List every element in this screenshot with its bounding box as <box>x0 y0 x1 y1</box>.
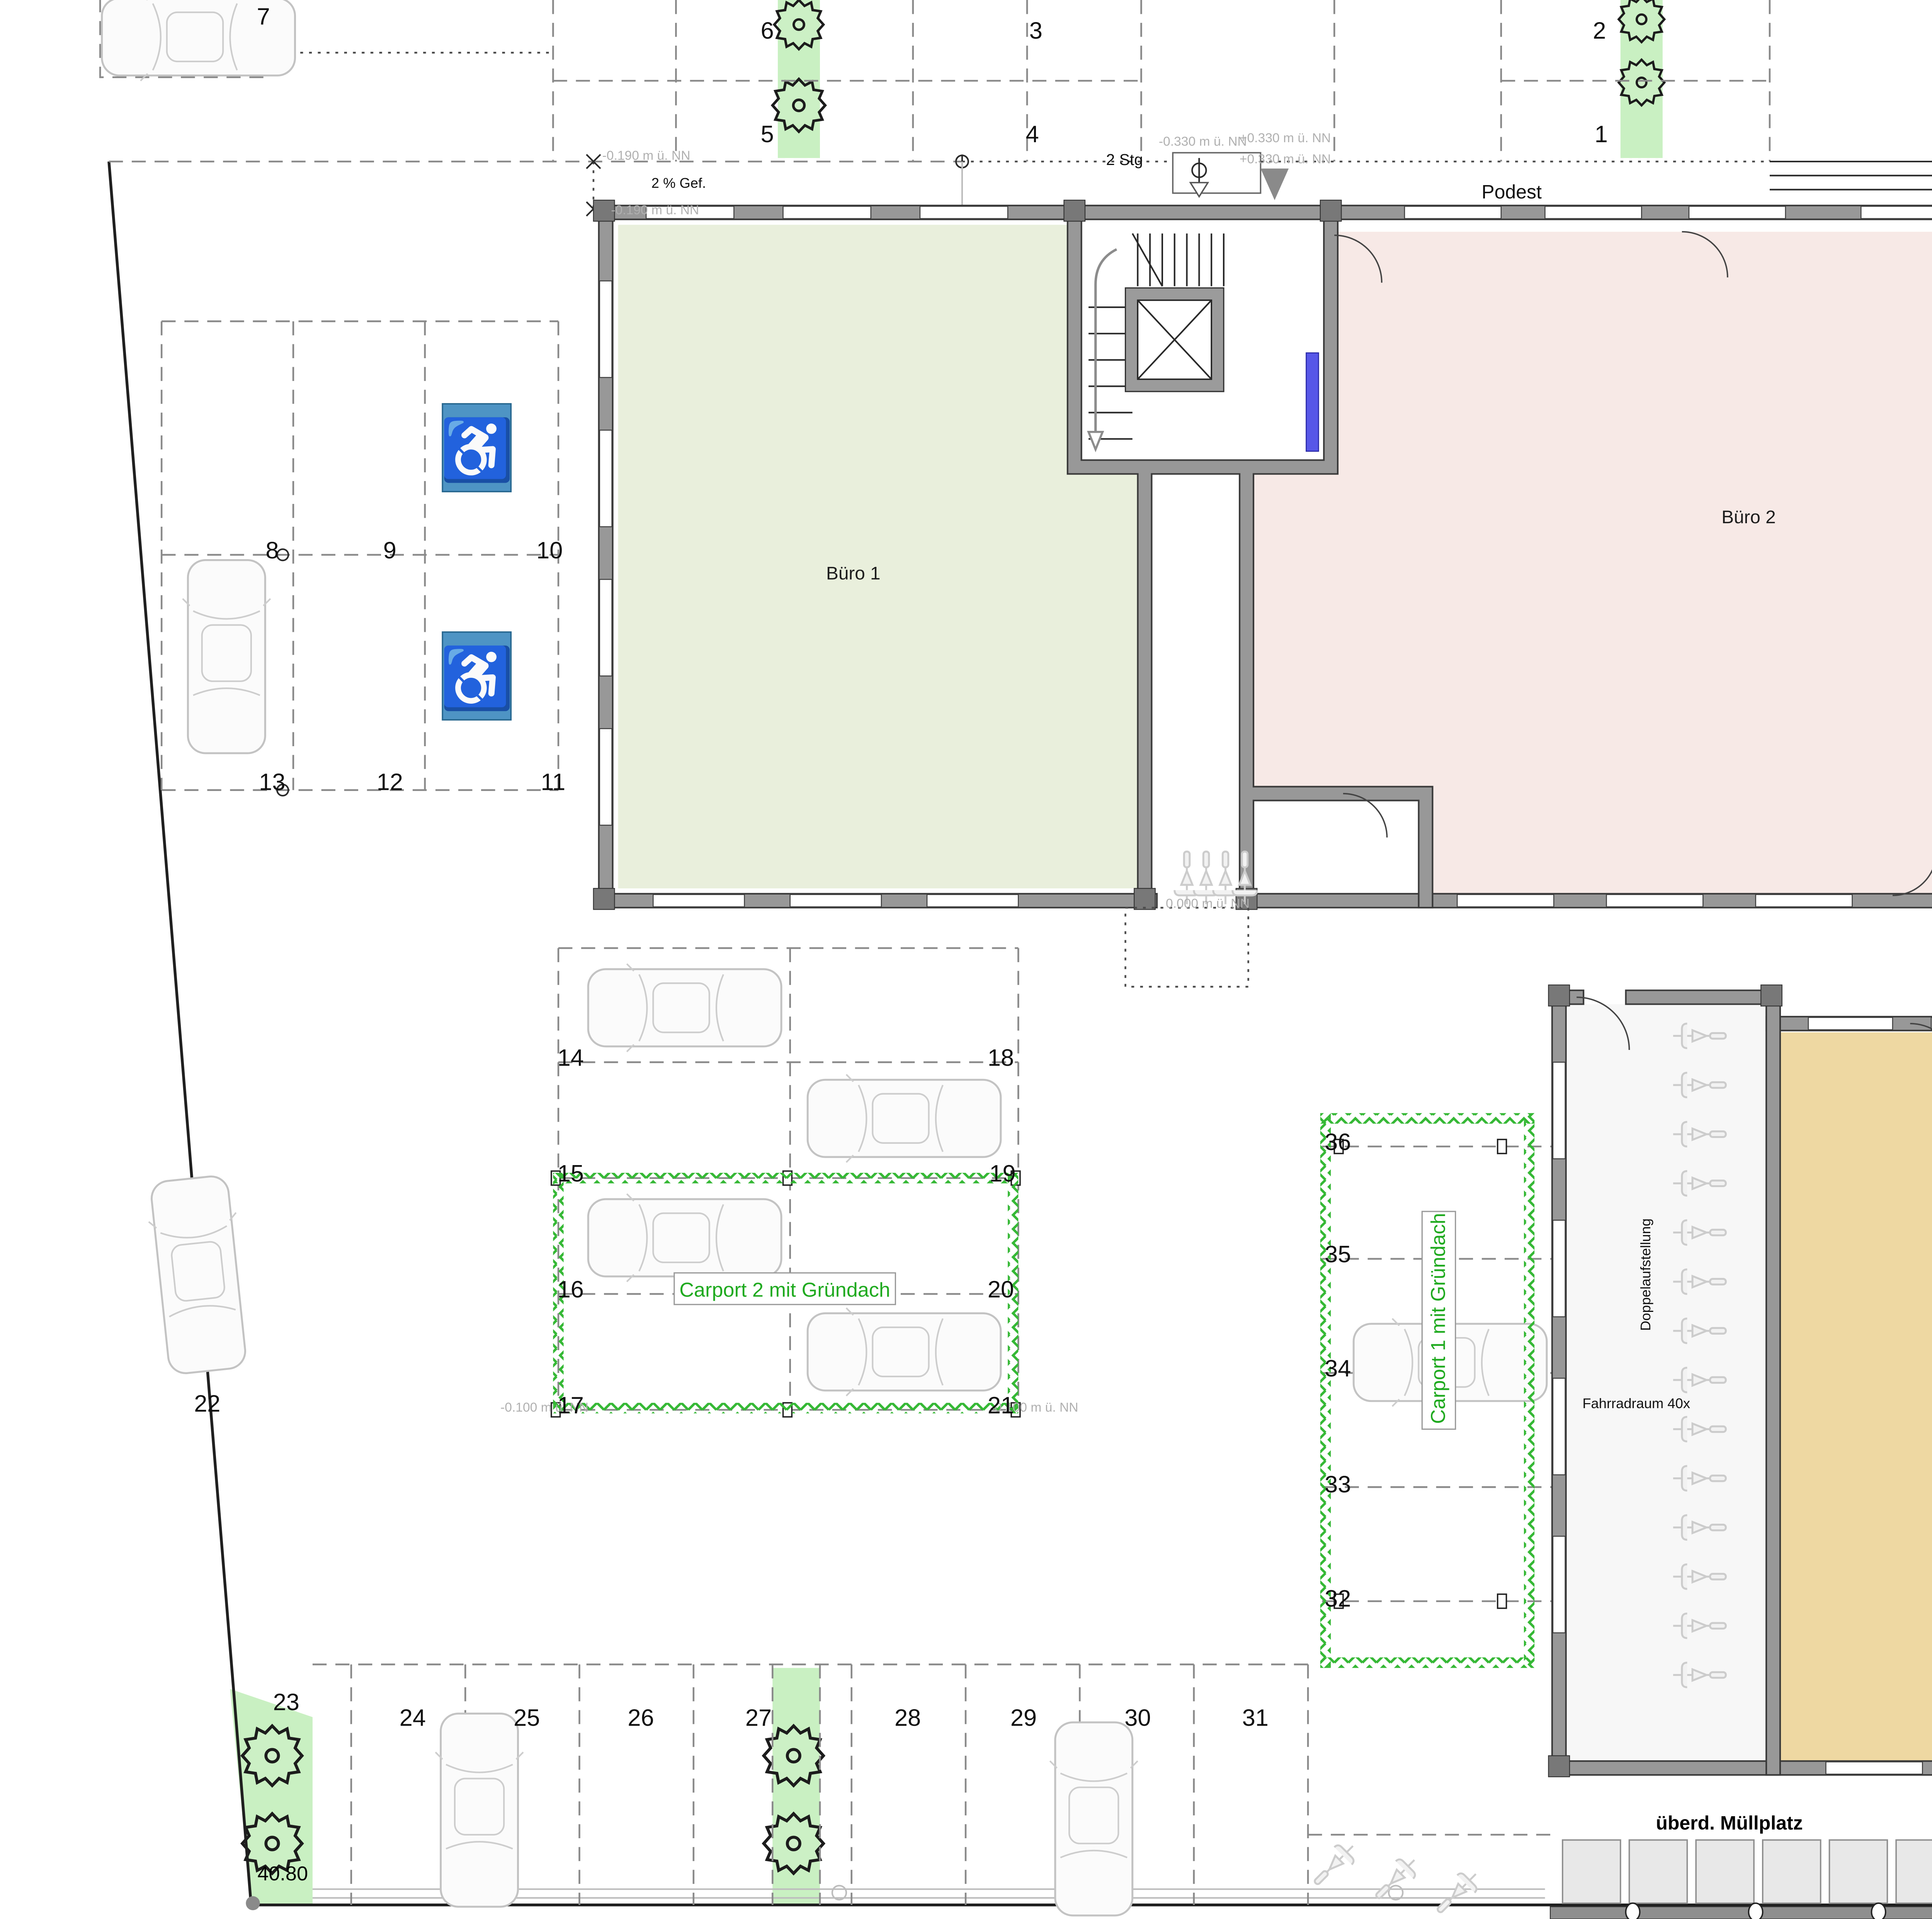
spot-30: 30 <box>1124 1704 1151 1731</box>
spot-25: 25 <box>514 1704 540 1731</box>
svg-text:+0.330 m ü. NN: +0.330 m ü. NN <box>1240 131 1331 145</box>
car-icon <box>1050 1722 1138 1916</box>
wheelchair-icon: ♿ <box>440 417 514 484</box>
svg-text:Carport 1 mit Gründach: Carport 1 mit Gründach <box>1427 1213 1449 1424</box>
spot-32: 32 <box>1325 1585 1351 1611</box>
spot-17: 17 <box>558 1392 584 1418</box>
spot-34: 34 <box>1325 1355 1351 1381</box>
spot-26: 26 <box>628 1704 654 1731</box>
fahrradraum-fill <box>1568 1004 1769 1764</box>
spot-24: 24 <box>400 1704 426 1731</box>
boundary-point <box>246 1896 260 1910</box>
room-buero3-fill <box>1780 1033 1932 1761</box>
spot-31: 31 <box>1242 1704 1269 1731</box>
carport-1-label: Carport 1 mit Gründach <box>1422 1211 1455 1429</box>
svg-text:-0.190 m ü. NN: -0.190 m ü. NN <box>611 203 699 217</box>
room-label-buero1: Büro 1 <box>826 563 881 584</box>
accessible-parking-sign: ♿ <box>440 632 514 720</box>
spot-16: 16 <box>558 1276 584 1303</box>
room-label-fahrradraum: Fahrradraum 40x <box>1582 1395 1690 1411</box>
spot-12: 12 <box>377 769 403 795</box>
spot-33: 33 <box>1325 1471 1351 1497</box>
spot-8: 8 <box>265 537 279 563</box>
spot-18: 18 <box>988 1044 1014 1071</box>
svg-text:Carport 2 mit Gründach: Carport 2 mit Gründach <box>679 1279 890 1301</box>
door-marker-blue <box>1306 353 1319 451</box>
entry-hall-fill <box>1253 794 1422 896</box>
spot-22: 22 <box>194 1390 220 1417</box>
room-label-doppelaufstellung: Doppelaufstellung <box>1638 1218 1653 1331</box>
floor-plan-canvas: ♿ ♿ <box>0 0 1932 1919</box>
spot-28: 28 <box>895 1704 921 1731</box>
car-icon <box>808 1075 1001 1162</box>
car-icon <box>183 560 270 753</box>
spot-27: 27 <box>745 1704 772 1731</box>
svg-text:0.000 m ü. NN: 0.000 m ü. NN <box>1166 897 1250 911</box>
room-buero1-fill <box>618 225 1138 888</box>
spot-35: 35 <box>1325 1241 1351 1267</box>
bicycle-icon <box>1307 1837 1362 1892</box>
spot-23: 23 <box>273 1688 299 1715</box>
gefaelle-label: 2 % Gef. <box>651 175 706 191</box>
muellplatz-label: überd. Müllplatz <box>1656 1812 1803 1834</box>
site-dimension-label: 40.80 <box>257 1863 308 1885</box>
svg-text:+0.330 m ü. NN: +0.330 m ü. NN <box>1240 152 1331 167</box>
spot-2: 2 <box>1593 17 1606 44</box>
spot-10: 10 <box>536 537 563 563</box>
svg-text:-0.330 m ü. NN: -0.330 m ü. NN <box>1159 134 1247 149</box>
spot-36: 36 <box>1325 1128 1351 1155</box>
spot-13: 13 <box>259 769 285 795</box>
spot-11: 11 <box>541 769 566 795</box>
building <box>594 200 1932 1777</box>
carport-2-label: Carport 2 mit Gründach <box>674 1273 895 1305</box>
car-icon <box>435 1713 523 1907</box>
car-icon <box>145 1174 252 1376</box>
wheelchair-icon: ♿ <box>440 645 514 712</box>
floor-plan-drawing: ♿ ♿ <box>0 0 1932 1919</box>
stg2-label-top: 2 Stg <box>1106 151 1143 168</box>
spot-3: 3 <box>1029 17 1043 44</box>
spot-4: 4 <box>1026 121 1039 147</box>
spot-14: 14 <box>558 1044 584 1071</box>
car-icon <box>588 1194 781 1282</box>
svg-text:-0.190 m ü. NN: -0.190 m ü. NN <box>602 148 690 163</box>
spot-15: 15 <box>558 1160 584 1187</box>
room-label-buero2: Büro 2 <box>1721 507 1776 527</box>
spot-6: 6 <box>761 17 774 44</box>
spot-19: 19 <box>989 1160 1015 1187</box>
bicycle-icon <box>1430 1865 1485 1919</box>
accessible-parking-sign: ♿ <box>440 404 514 492</box>
spot-5: 5 <box>761 121 774 147</box>
spot-1: 1 <box>1595 121 1608 147</box>
spot-20: 20 <box>988 1276 1014 1303</box>
car-icon <box>808 1308 1001 1396</box>
spot-29: 29 <box>1010 1704 1037 1731</box>
spot-9: 9 <box>383 537 396 563</box>
spot-7: 7 <box>257 3 270 30</box>
car-icon <box>588 964 781 1051</box>
podest-label-top: Podest <box>1481 181 1542 202</box>
spot-21: 21 <box>988 1392 1014 1418</box>
entry-arrow <box>1260 168 1289 200</box>
